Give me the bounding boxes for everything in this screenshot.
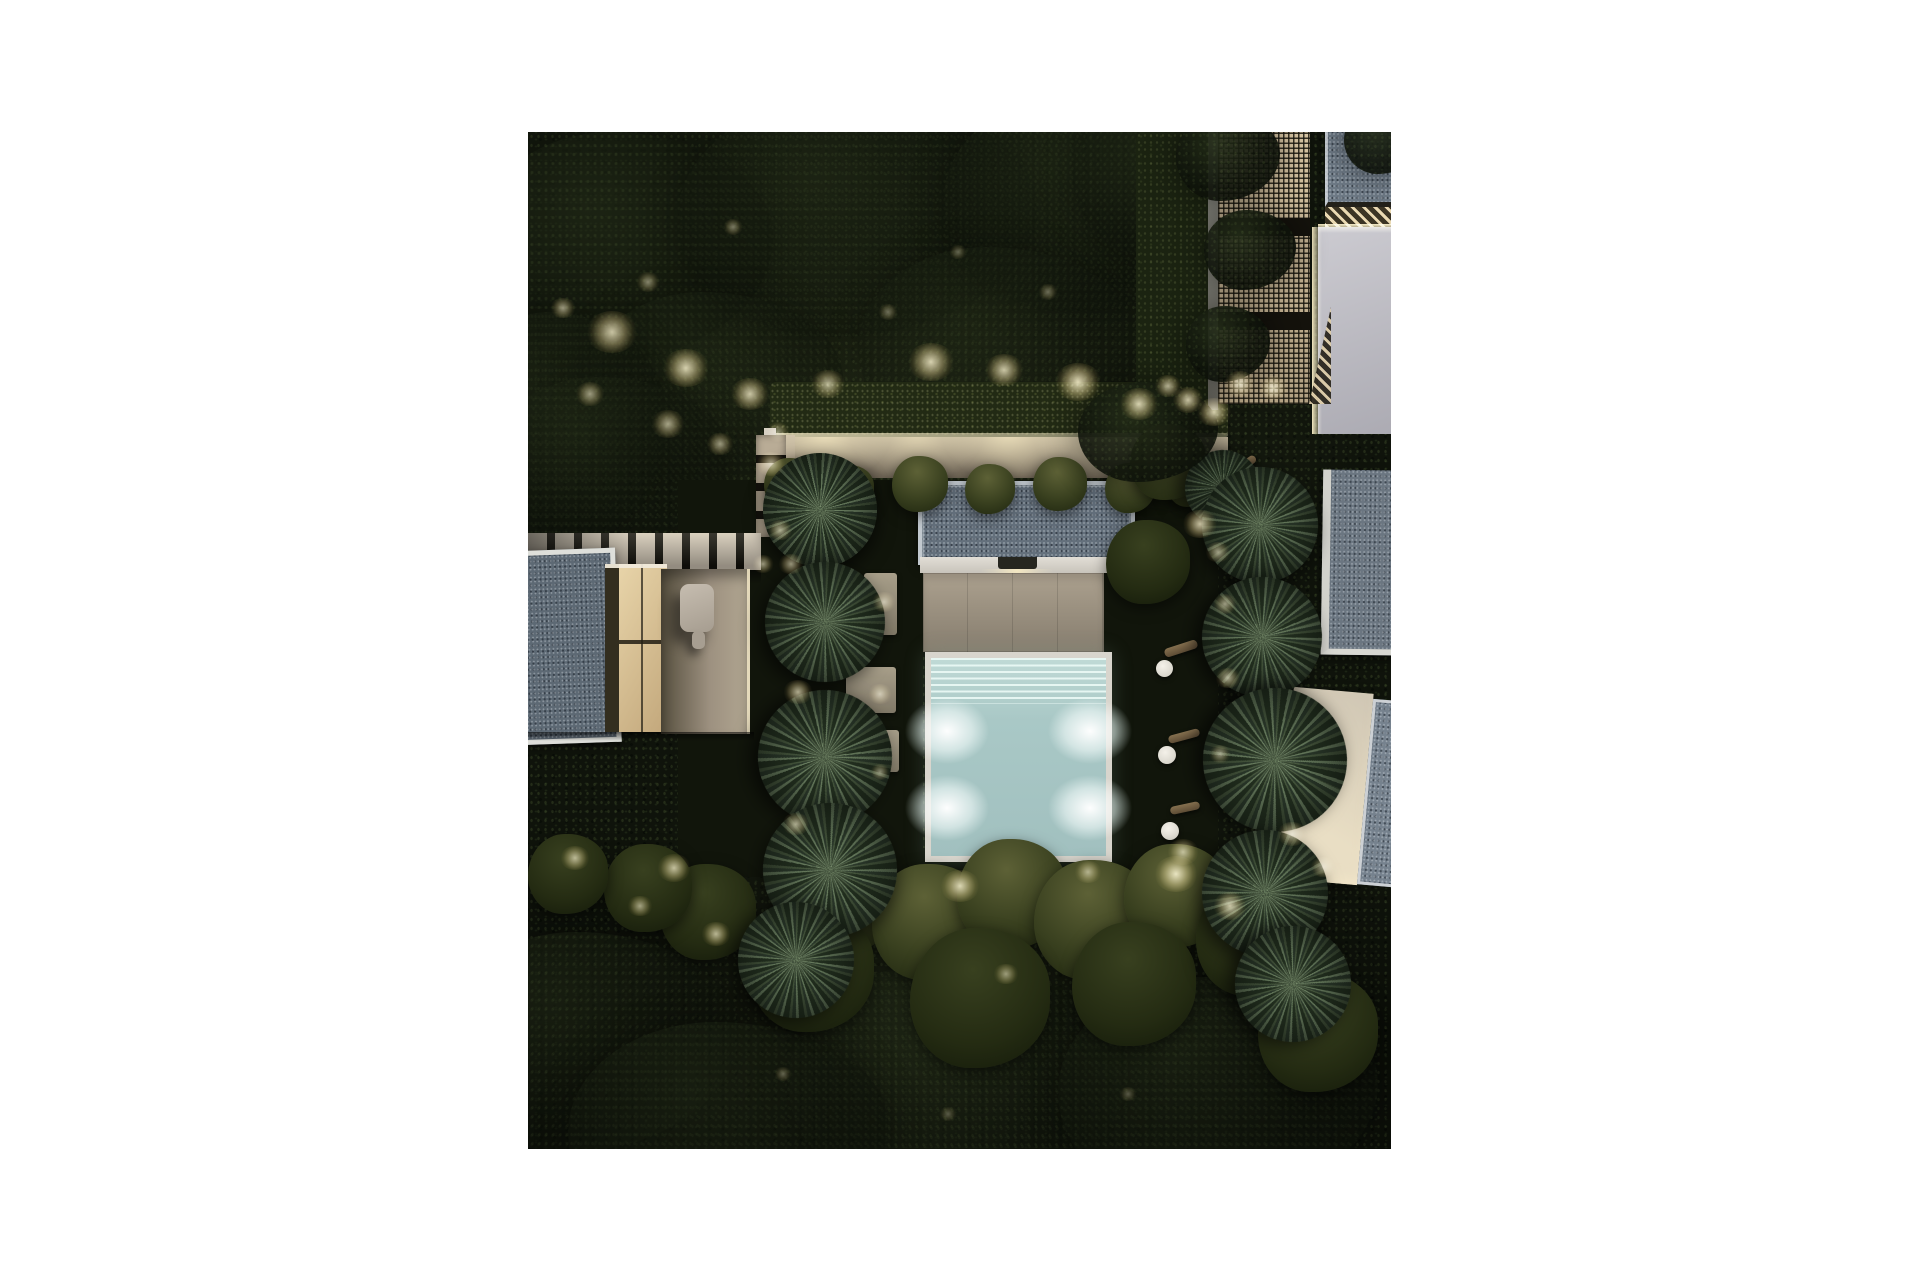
garden-light	[940, 870, 980, 902]
garden-light	[752, 555, 774, 573]
garden-light	[767, 520, 793, 541]
garden-light	[1038, 284, 1058, 300]
garden-light	[636, 272, 660, 291]
garden-light	[868, 684, 892, 703]
garden-light	[586, 311, 638, 353]
garden-light	[783, 680, 813, 704]
garden-light	[550, 298, 576, 319]
garden-light	[872, 592, 896, 611]
garden-light	[1224, 371, 1256, 397]
aerial-villa-photo	[528, 132, 1391, 1149]
garden-light	[1205, 542, 1231, 563]
garden-light	[651, 410, 685, 437]
garden-light	[627, 896, 653, 917]
garden-light	[1310, 857, 1336, 878]
garden-light	[878, 304, 898, 320]
garden-light	[730, 378, 770, 410]
garden-light	[1182, 510, 1218, 539]
garden-light	[907, 343, 955, 381]
garden-light	[756, 452, 786, 476]
garden-light	[984, 354, 1024, 386]
garden-light	[993, 964, 1019, 985]
garden-light	[939, 1107, 957, 1121]
garden-light	[766, 422, 790, 441]
garden-light	[782, 813, 810, 835]
garden-light	[778, 554, 804, 575]
garden-light	[1213, 594, 1237, 613]
garden-light	[1277, 822, 1307, 846]
garden-light	[1196, 398, 1232, 427]
garden-light	[810, 370, 846, 399]
garden-light	[701, 922, 731, 946]
garden-light	[870, 764, 890, 780]
garden-light	[662, 349, 710, 387]
garden-light	[1054, 363, 1102, 401]
garden-light	[1215, 668, 1241, 689]
garden-light	[774, 1067, 792, 1081]
garden-light	[723, 219, 743, 235]
garden-light	[1167, 839, 1199, 865]
garden-light	[657, 854, 691, 881]
garden-light	[575, 382, 605, 406]
garden-light	[1209, 745, 1231, 763]
garden-light	[949, 245, 967, 259]
garden-light	[1154, 375, 1182, 397]
garden-light	[1258, 376, 1288, 400]
garden-light	[1119, 1087, 1137, 1101]
garden-light	[1119, 388, 1159, 420]
glow-layer	[528, 132, 1391, 1149]
garden-light	[1074, 861, 1102, 883]
garden-light	[1213, 892, 1247, 919]
garden-light	[706, 433, 734, 455]
garden-light	[560, 846, 590, 870]
